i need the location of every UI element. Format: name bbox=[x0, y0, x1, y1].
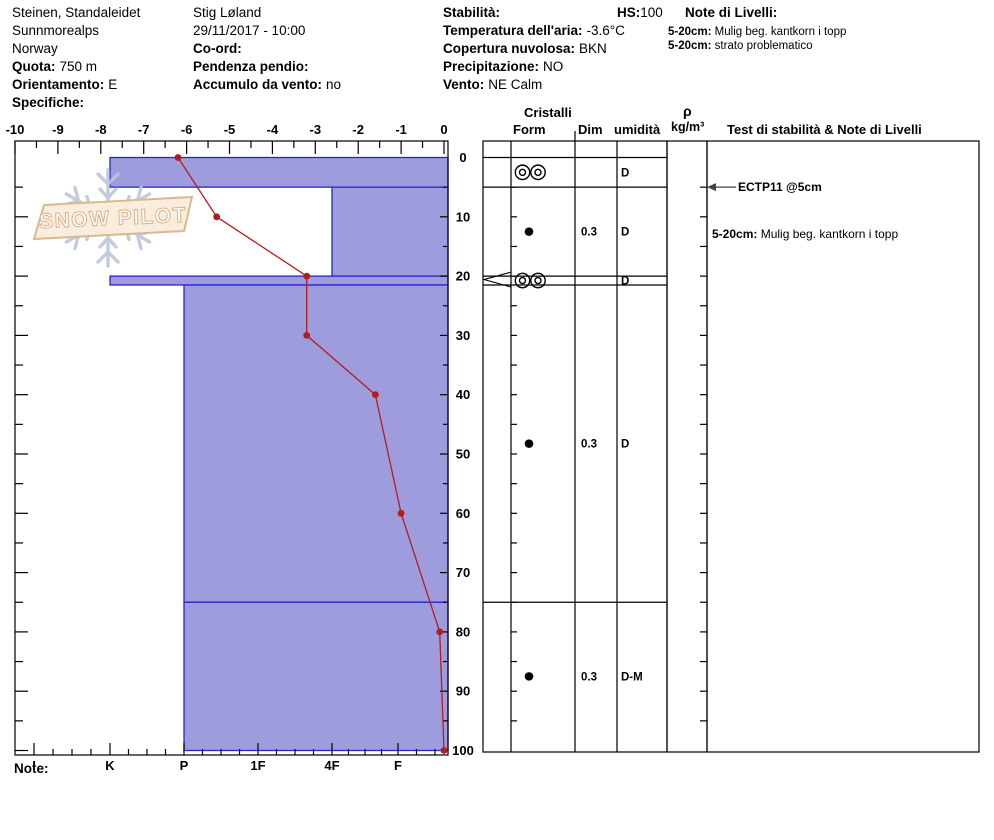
temp-tick-label: -9 bbox=[52, 122, 64, 137]
grain-form-icon bbox=[520, 169, 526, 175]
crystals-header: Cristalli bbox=[524, 105, 572, 120]
slope-angle-label: Pendenza pendio: bbox=[193, 58, 309, 76]
form-column-header: Form bbox=[513, 122, 546, 137]
density-symbol: ρ bbox=[683, 103, 692, 119]
footer-note-label: Note: bbox=[14, 761, 49, 776]
depth-tick-label: 0 bbox=[459, 150, 466, 165]
pit-datetime: 29/11/2017 - 10:00 bbox=[193, 22, 305, 40]
depth-tick-label: 40 bbox=[456, 387, 470, 402]
temp-tick-label: -10 bbox=[6, 122, 25, 137]
density-column-border bbox=[667, 141, 707, 752]
depth-tick-label: 30 bbox=[456, 328, 470, 343]
pit-elevation: Quota:750 m bbox=[12, 58, 97, 76]
layer-bar-5-20cm bbox=[332, 187, 448, 276]
depth-tick-label: 50 bbox=[456, 447, 470, 462]
wetness-value: D bbox=[621, 227, 629, 239]
density-unit: kg/m³ bbox=[671, 120, 704, 134]
grain-form-icon bbox=[520, 278, 526, 284]
stability-test-note: ECTP11 @5cm bbox=[738, 180, 822, 194]
grain-form-icon bbox=[515, 165, 529, 179]
temp-tick-label: -8 bbox=[95, 122, 107, 137]
grain-form-icon bbox=[525, 672, 534, 681]
temperature-point bbox=[441, 747, 448, 754]
layer-notes-title: Note di Livelli: bbox=[685, 4, 777, 22]
hardness-tick-label: P bbox=[180, 758, 189, 773]
snowpilot-logo: SNOW PILOT bbox=[20, 160, 220, 275]
grain-size-value: 0.3 bbox=[581, 227, 597, 239]
stability-tests-header: Test di stabilità & Note di Livelli bbox=[727, 122, 922, 137]
air-temperature: Temperatura dell'aria:-3.6°C bbox=[443, 22, 625, 40]
grain-form-icon bbox=[525, 439, 534, 448]
wetness-value: D bbox=[621, 167, 629, 179]
temperature-point bbox=[398, 510, 405, 517]
hardness-tick-label: F bbox=[394, 758, 402, 773]
pit-location: Steinen, Standaleidet bbox=[12, 4, 140, 22]
observer-name: Stig Løland bbox=[193, 4, 261, 22]
depth-tick-label: 100 bbox=[452, 743, 474, 758]
wind-loading: Accumulo da vento:no bbox=[193, 76, 341, 94]
temperature-point bbox=[303, 273, 310, 280]
humidity-column-header: umidità bbox=[614, 122, 660, 137]
problem-layer-note: 5-20cm: Mulig beg. kantkorn i topp bbox=[712, 227, 898, 241]
snowpilot-profile-page: -10-9-8-7-6-5-4-3-2-10IKP1F4FF0102030405… bbox=[0, 0, 994, 840]
grain-form-icon bbox=[535, 278, 541, 284]
grain-size-value: 0.3 bbox=[581, 671, 597, 683]
pit-specifics-label: Specifiche: bbox=[12, 94, 84, 112]
depth-tick-label: 90 bbox=[456, 684, 470, 699]
temp-tick-label: -1 bbox=[395, 122, 407, 137]
temp-tick-label: -5 bbox=[224, 122, 236, 137]
stability-label: Stabilità: bbox=[443, 4, 500, 22]
depth-tick-label: 20 bbox=[456, 269, 470, 284]
pit-aspect: Orientamento:E bbox=[12, 76, 117, 94]
hardness-tick-label: K bbox=[105, 758, 115, 773]
ect-arrow-head-icon bbox=[707, 183, 716, 191]
depth-tick-label: 60 bbox=[456, 506, 470, 521]
wetness-value: D bbox=[621, 439, 629, 451]
temperature-point bbox=[436, 629, 443, 636]
temp-tick-label: 0 bbox=[440, 122, 447, 137]
wind: Vento:NE Calm bbox=[443, 76, 542, 94]
dim-column-header: Dim bbox=[578, 122, 603, 137]
grain-form-icon bbox=[535, 169, 541, 175]
pit-country: Norway bbox=[12, 40, 58, 58]
precipitation: Precipitazione:NO bbox=[443, 58, 563, 76]
layer-note-line: 5-20cm: Mulig beg. kantkorn i topp bbox=[668, 25, 846, 39]
layer-bar-20-21.5cm bbox=[110, 276, 448, 285]
wetness-value: D bbox=[621, 276, 629, 288]
snow-height: HS:100 bbox=[617, 4, 663, 22]
hardness-tick-label: 1F bbox=[250, 758, 265, 773]
wetness-value: D-M bbox=[621, 671, 643, 683]
temperature-point bbox=[303, 332, 310, 339]
grain-form-icon bbox=[531, 165, 545, 179]
depth-tick-label: 10 bbox=[456, 209, 470, 224]
temp-tick-label: -6 bbox=[181, 122, 193, 137]
temp-tick-label: -3 bbox=[310, 122, 322, 137]
coords-label: Co-ord: bbox=[193, 40, 242, 58]
hardness-tick-label: 4F bbox=[324, 758, 339, 773]
grain-form-icon bbox=[525, 227, 534, 236]
layer-note-line: 5-20cm: strato problematico bbox=[668, 39, 812, 53]
pit-range: Sunnmorealps bbox=[12, 22, 99, 40]
depth-tick-label: 80 bbox=[456, 624, 470, 639]
depth-tick-label: 70 bbox=[456, 565, 470, 580]
temp-tick-label: -2 bbox=[352, 122, 364, 137]
temp-tick-label: -4 bbox=[267, 122, 279, 137]
layer-bar-75-100cm bbox=[184, 602, 448, 750]
grain-size-value: 0.3 bbox=[581, 439, 597, 451]
layer-bar-21.5-75cm bbox=[184, 285, 448, 602]
cloud-cover: Copertura nuvolosa:BKN bbox=[443, 40, 607, 58]
temperature-point bbox=[372, 391, 379, 398]
temp-tick-label: -7 bbox=[138, 122, 150, 137]
